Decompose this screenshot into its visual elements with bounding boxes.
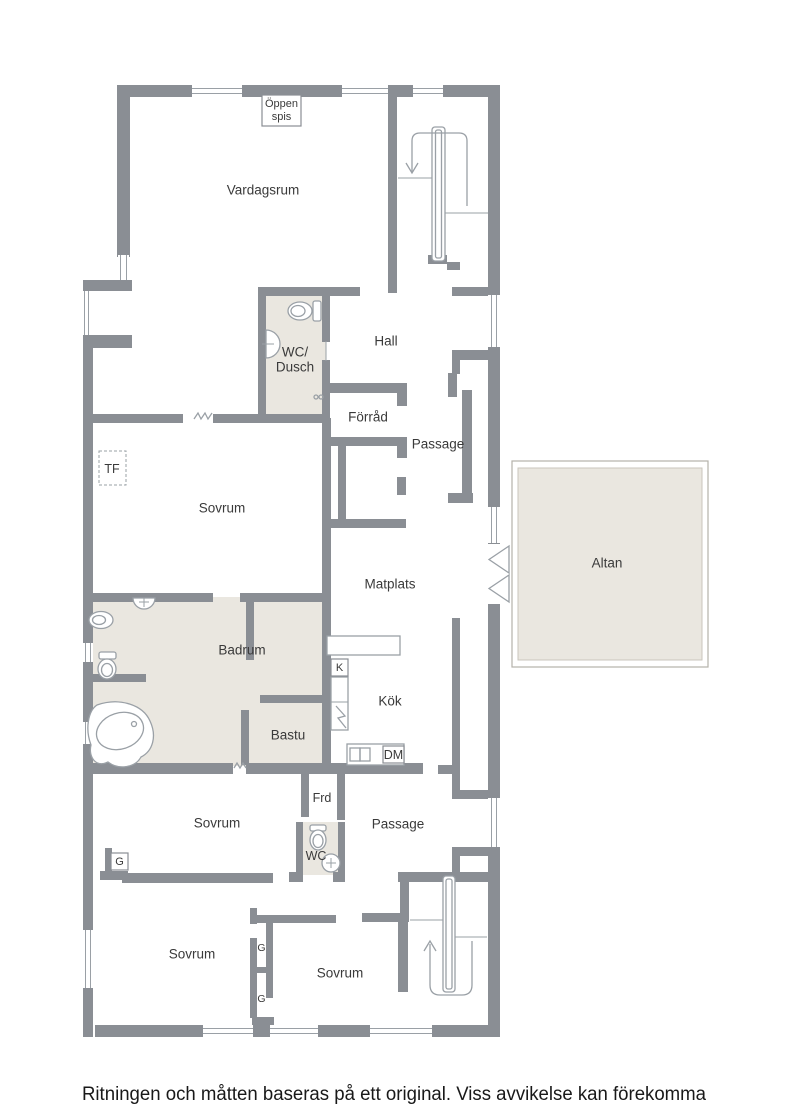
- room-label: K: [336, 662, 344, 674]
- room-label: Matplats: [364, 577, 415, 592]
- room-label: G: [257, 942, 265, 954]
- window: [83, 643, 93, 662]
- interior-walls: [83, 97, 490, 1035]
- toilet-icon: [310, 825, 326, 850]
- room-label: Bastu: [271, 728, 306, 743]
- window: [270, 1025, 318, 1037]
- room-label: Sovrum: [317, 966, 364, 981]
- window: [192, 85, 242, 97]
- window: [370, 1025, 432, 1037]
- room-label: spis: [272, 111, 292, 123]
- door-mark: [194, 413, 212, 419]
- room-label: Passage: [372, 817, 425, 832]
- window: [118, 255, 129, 280]
- room-label: Sovrum: [194, 816, 241, 831]
- room-label: WC: [306, 849, 327, 863]
- toilet-icon: [98, 652, 116, 679]
- room-label: Dusch: [276, 360, 314, 375]
- window: [488, 798, 500, 847]
- room-label: Öppen: [265, 98, 298, 110]
- room-label: TF: [104, 462, 120, 476]
- room-label: DM: [384, 748, 403, 762]
- window: [83, 930, 93, 988]
- floor-plan: Öppen spis Vardagsrum WC/ Dusch Hall För…: [0, 0, 792, 1120]
- staircase-lower: [410, 876, 487, 995]
- window: [203, 1025, 253, 1037]
- window: [488, 507, 500, 543]
- kitchen-tall-unit: [331, 677, 348, 730]
- toilet-icon: [288, 301, 321, 321]
- disclaimer-text: Ritningen och måtten baseras på ett orig…: [82, 1084, 706, 1105]
- kitchen-counter: [327, 636, 400, 655]
- window: [342, 85, 388, 97]
- room-label: G: [257, 993, 265, 1005]
- room-label: Altan: [592, 556, 623, 571]
- room-label: Passage: [412, 437, 465, 452]
- room-label: WC/: [282, 345, 308, 360]
- staircase-upper: [398, 127, 488, 261]
- room-label: Sovrum: [199, 501, 246, 516]
- room-label: Sovrum: [169, 947, 216, 962]
- window: [488, 295, 500, 347]
- room-label: G: [115, 856, 124, 868]
- window: [85, 291, 89, 335]
- sink-icon: [89, 612, 113, 629]
- room-label: Badrum: [218, 643, 265, 658]
- altan-door: [488, 544, 509, 604]
- window: [413, 85, 443, 97]
- room-label: Vardagsrum: [227, 183, 300, 198]
- room-label: Hall: [374, 334, 397, 349]
- room-label: Frd: [313, 791, 332, 805]
- room-label: Förråd: [348, 410, 388, 425]
- room-label: Kök: [378, 694, 402, 709]
